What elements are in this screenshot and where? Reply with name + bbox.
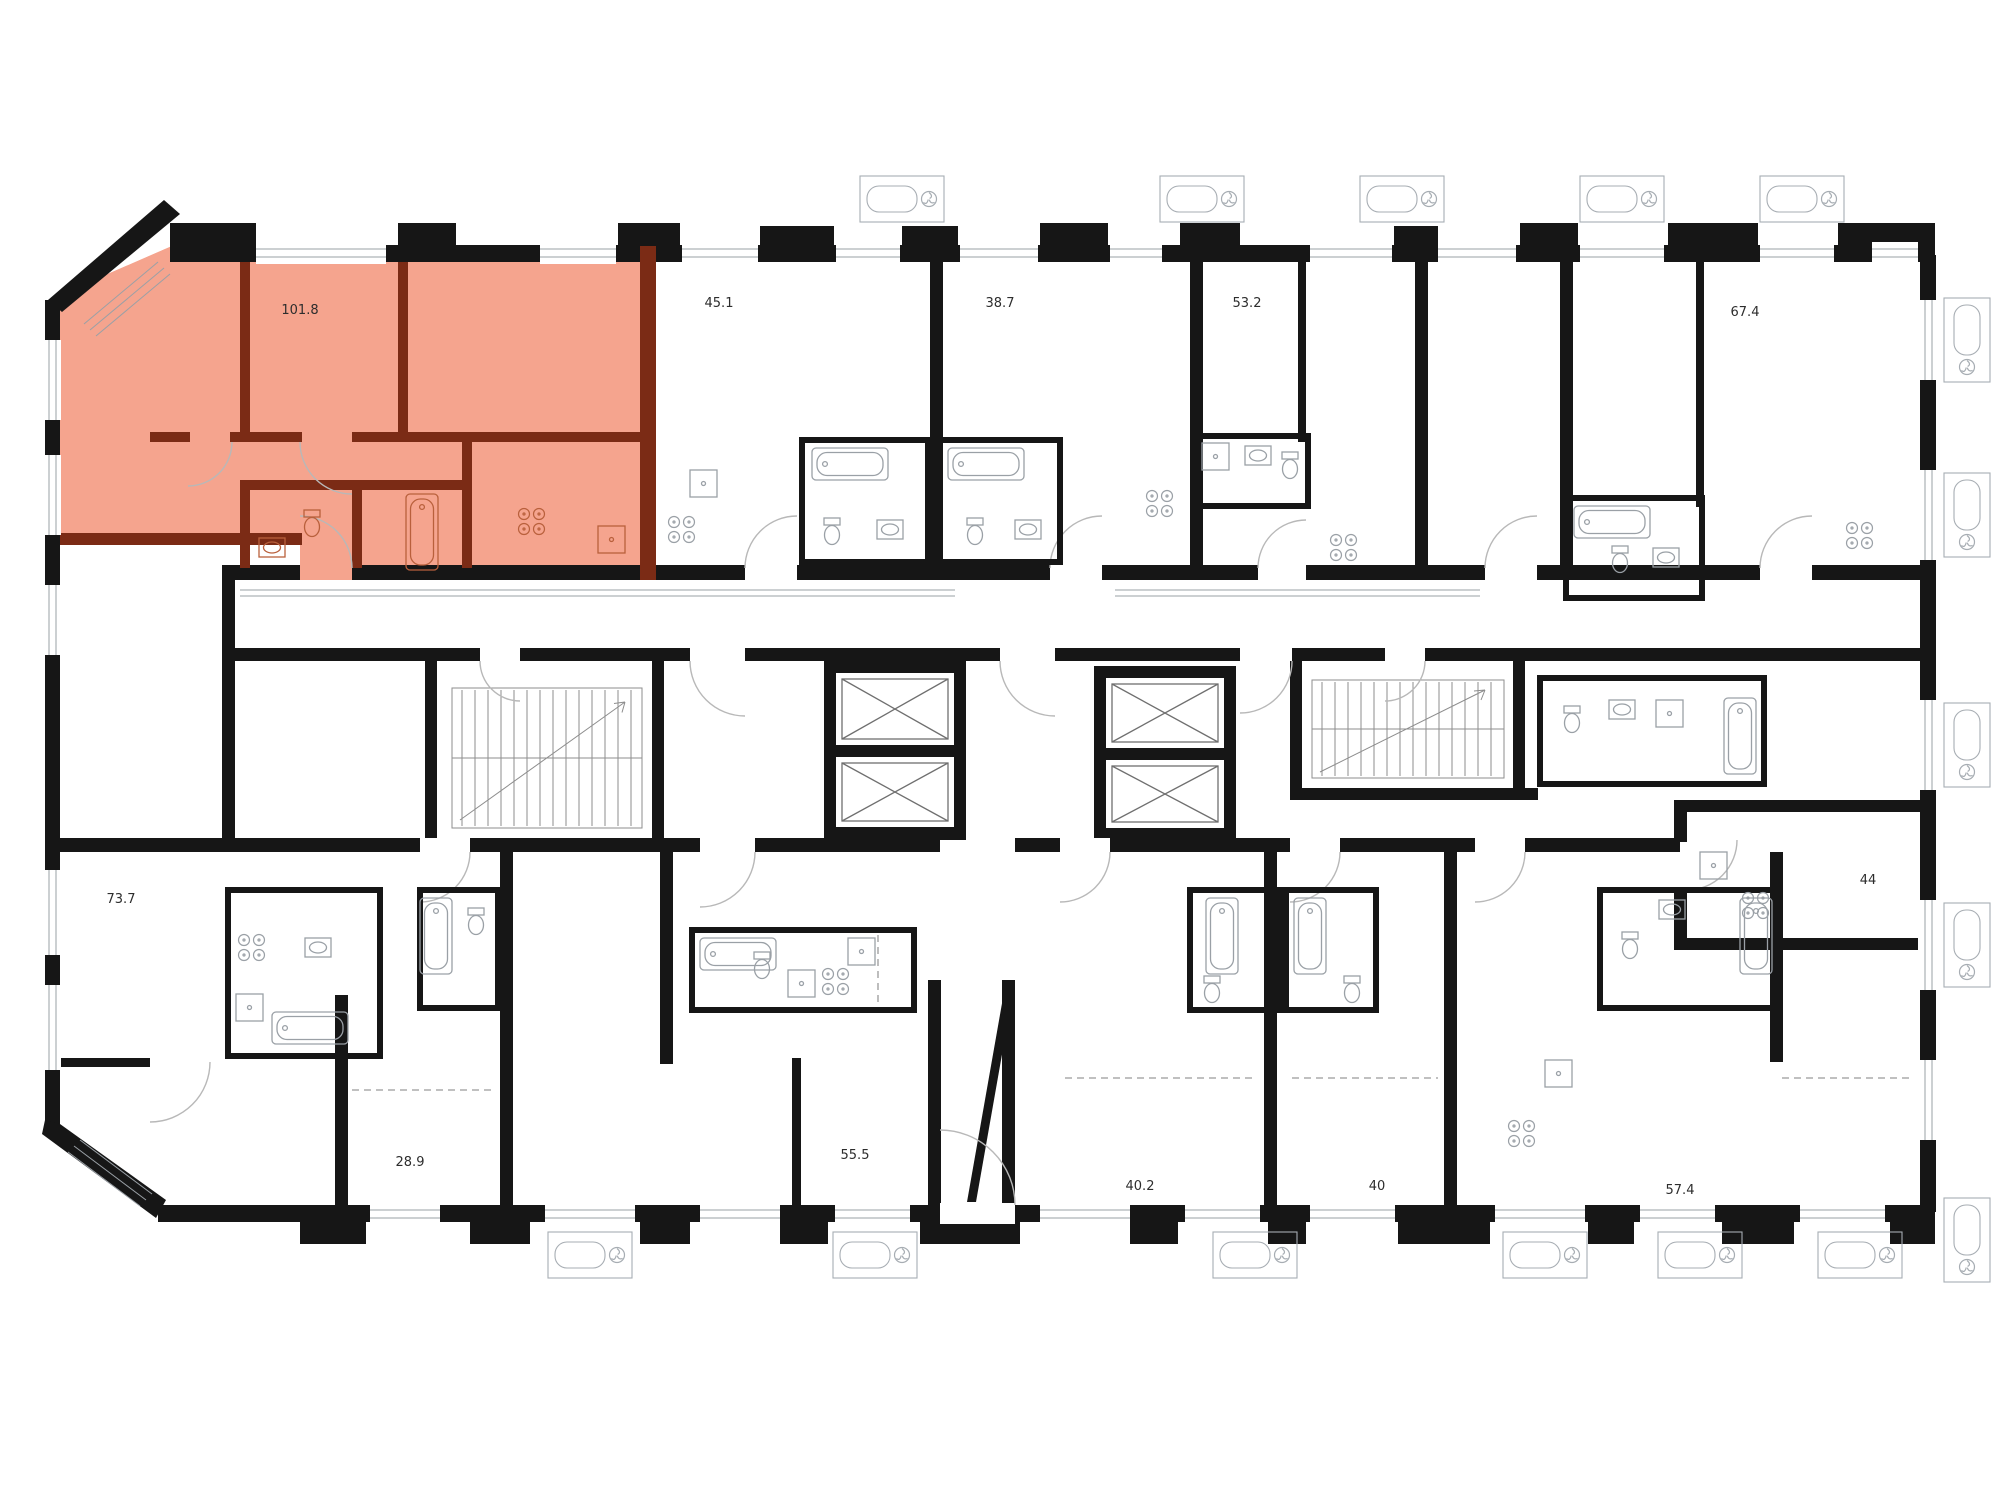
unit-area-label-57-4: 57.4 [1666,1183,1695,1198]
unit-area-label-73-7: 73.7 [107,892,136,907]
unit-area-label-45-1: 45.1 [705,296,734,311]
unit-area-label-44: 44 [1860,873,1877,888]
unit-area-label-53-2: 53.2 [1233,296,1262,311]
floor-plan: 101.8 45.1 38.7 53.2 67.4 73.7 44 28.9 5… [0,0,2000,1512]
unit-area-label-55-5: 55.5 [841,1148,870,1163]
unit-area-label-40-2: 40.2 [1126,1179,1155,1194]
unit-area-label-40: 40 [1369,1179,1386,1194]
unit-area-label-28-9: 28.9 [396,1155,425,1170]
unit-area-label-101-8: 101.8 [281,303,318,318]
floor-plan-page: 101.8 45.1 38.7 53.2 67.4 73.7 44 28.9 5… [0,0,2000,1512]
unit-area-label-67-4: 67.4 [1731,305,1760,320]
unit-area-label-38-7: 38.7 [986,296,1015,311]
